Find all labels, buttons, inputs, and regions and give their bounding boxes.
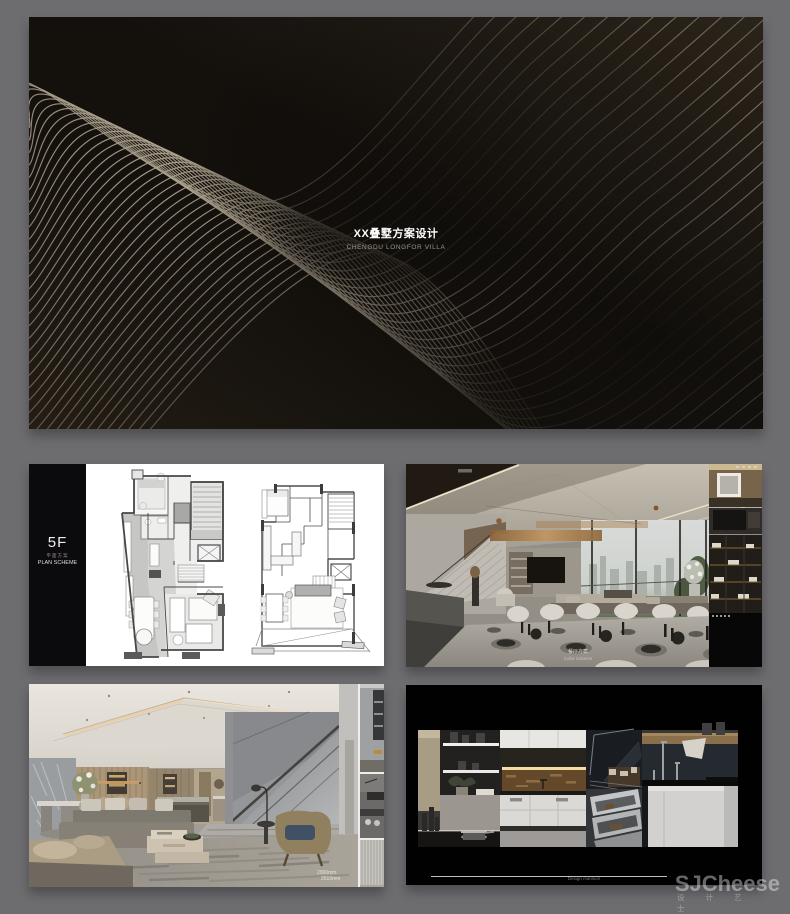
svg-text:Color Scheme: Color Scheme: [564, 656, 593, 661]
svg-text:Design mansion: Design mansion: [568, 876, 601, 881]
svg-text:餐厅方案: 餐厅方案: [568, 648, 588, 655]
svg-text:2510mm: 2510mm: [321, 876, 340, 882]
